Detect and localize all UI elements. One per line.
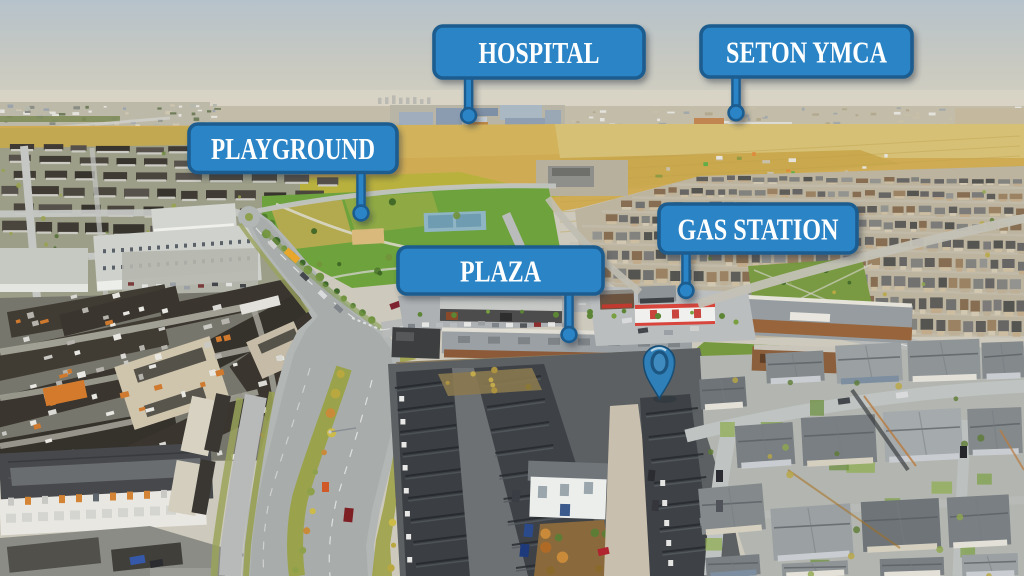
svg-text:GAS STATION: GAS STATION (678, 211, 839, 246)
svg-text:HOSPITAL: HOSPITAL (479, 35, 600, 70)
svg-text:SETON YMCA: SETON YMCA (726, 34, 887, 69)
svg-text:PLAZA: PLAZA (460, 253, 541, 288)
svg-text:PLAYGROUND: PLAYGROUND (211, 131, 375, 166)
